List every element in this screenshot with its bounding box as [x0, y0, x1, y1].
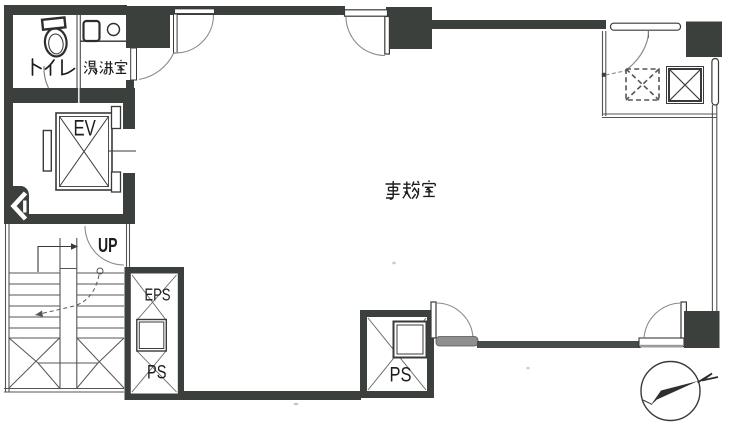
svg-text:EPS: EPS — [145, 285, 171, 305]
svg-text:PS: PS — [147, 363, 167, 384]
svg-text:UP: UP — [98, 235, 118, 257]
svg-text:PS: PS — [390, 364, 412, 387]
svg-text:EV: EV — [74, 116, 97, 141]
